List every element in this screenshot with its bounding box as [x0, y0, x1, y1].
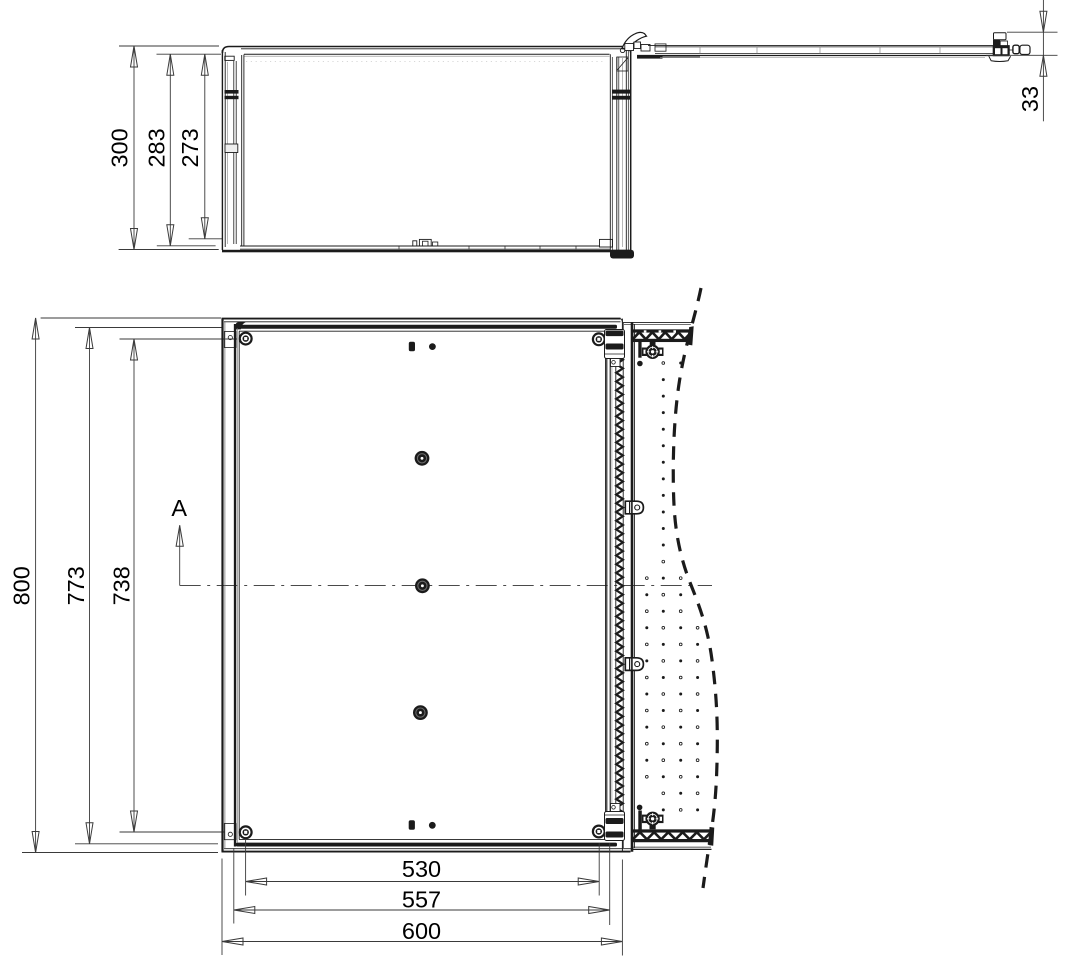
svg-text:33: 33 [1017, 86, 1043, 112]
svg-text:A: A [171, 495, 187, 521]
svg-text:800: 800 [9, 566, 35, 605]
svg-text:557: 557 [402, 887, 441, 913]
svg-text:530: 530 [402, 856, 441, 882]
svg-text:738: 738 [108, 566, 134, 605]
svg-text:600: 600 [402, 918, 441, 944]
svg-text:773: 773 [63, 566, 89, 605]
svg-text:283: 283 [144, 128, 170, 167]
svg-text:300: 300 [106, 128, 132, 167]
svg-text:273: 273 [177, 128, 203, 167]
